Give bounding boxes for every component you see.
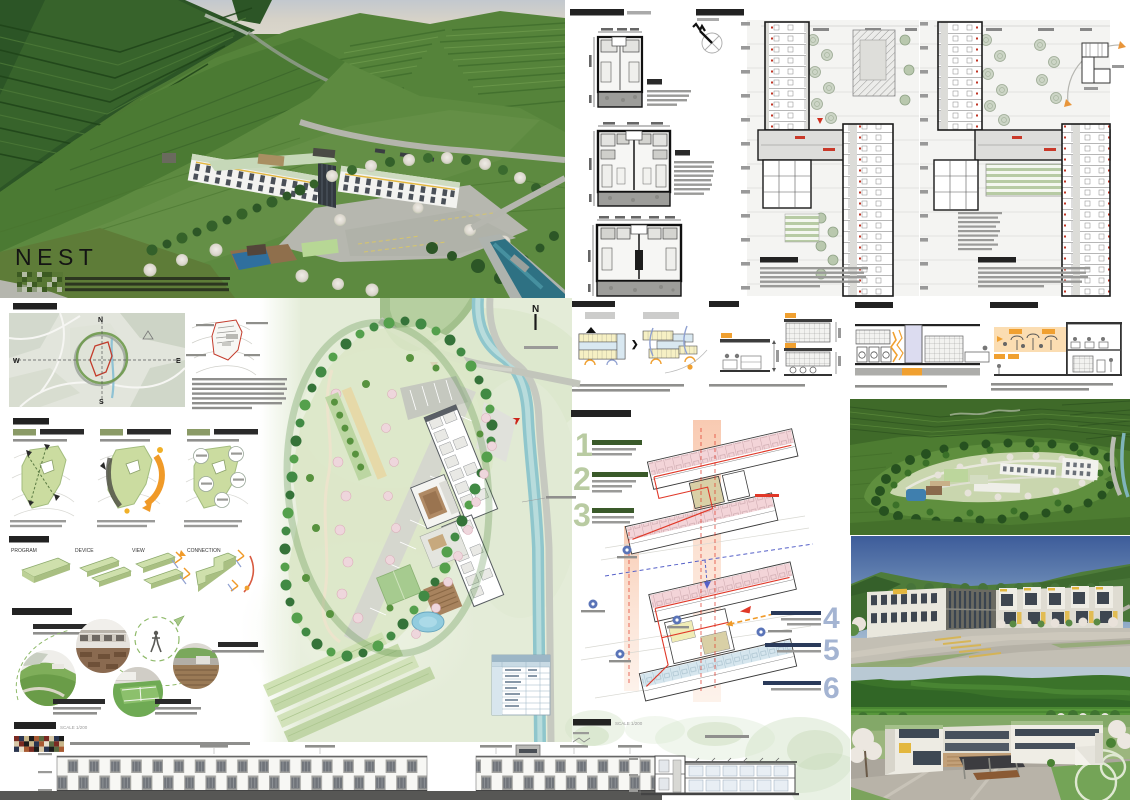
- svg-text:PROGRAM: PROGRAM: [11, 548, 37, 554]
- svg-text:DEVICE: DEVICE: [75, 548, 94, 554]
- svg-text:W: W: [13, 358, 20, 365]
- svg-text:N: N: [532, 304, 539, 315]
- svg-text:S: S: [99, 399, 104, 406]
- svg-text:NEST: NEST: [15, 244, 98, 270]
- svg-text:VIEW: VIEW: [132, 548, 145, 554]
- svg-text:CONNECTION: CONNECTION: [187, 548, 221, 554]
- svg-text:2: 2: [573, 461, 591, 497]
- svg-text:1: 1: [575, 427, 593, 463]
- svg-text:4: 4: [823, 602, 840, 635]
- svg-text:3: 3: [573, 497, 591, 533]
- svg-text:N: N: [98, 317, 103, 324]
- svg-text:SCALE 1/200: SCALE 1/200: [60, 725, 88, 730]
- svg-text:E: E: [176, 358, 181, 365]
- svg-text:SCALE 1/200: SCALE 1/200: [615, 721, 643, 726]
- svg-text:5: 5: [823, 634, 840, 667]
